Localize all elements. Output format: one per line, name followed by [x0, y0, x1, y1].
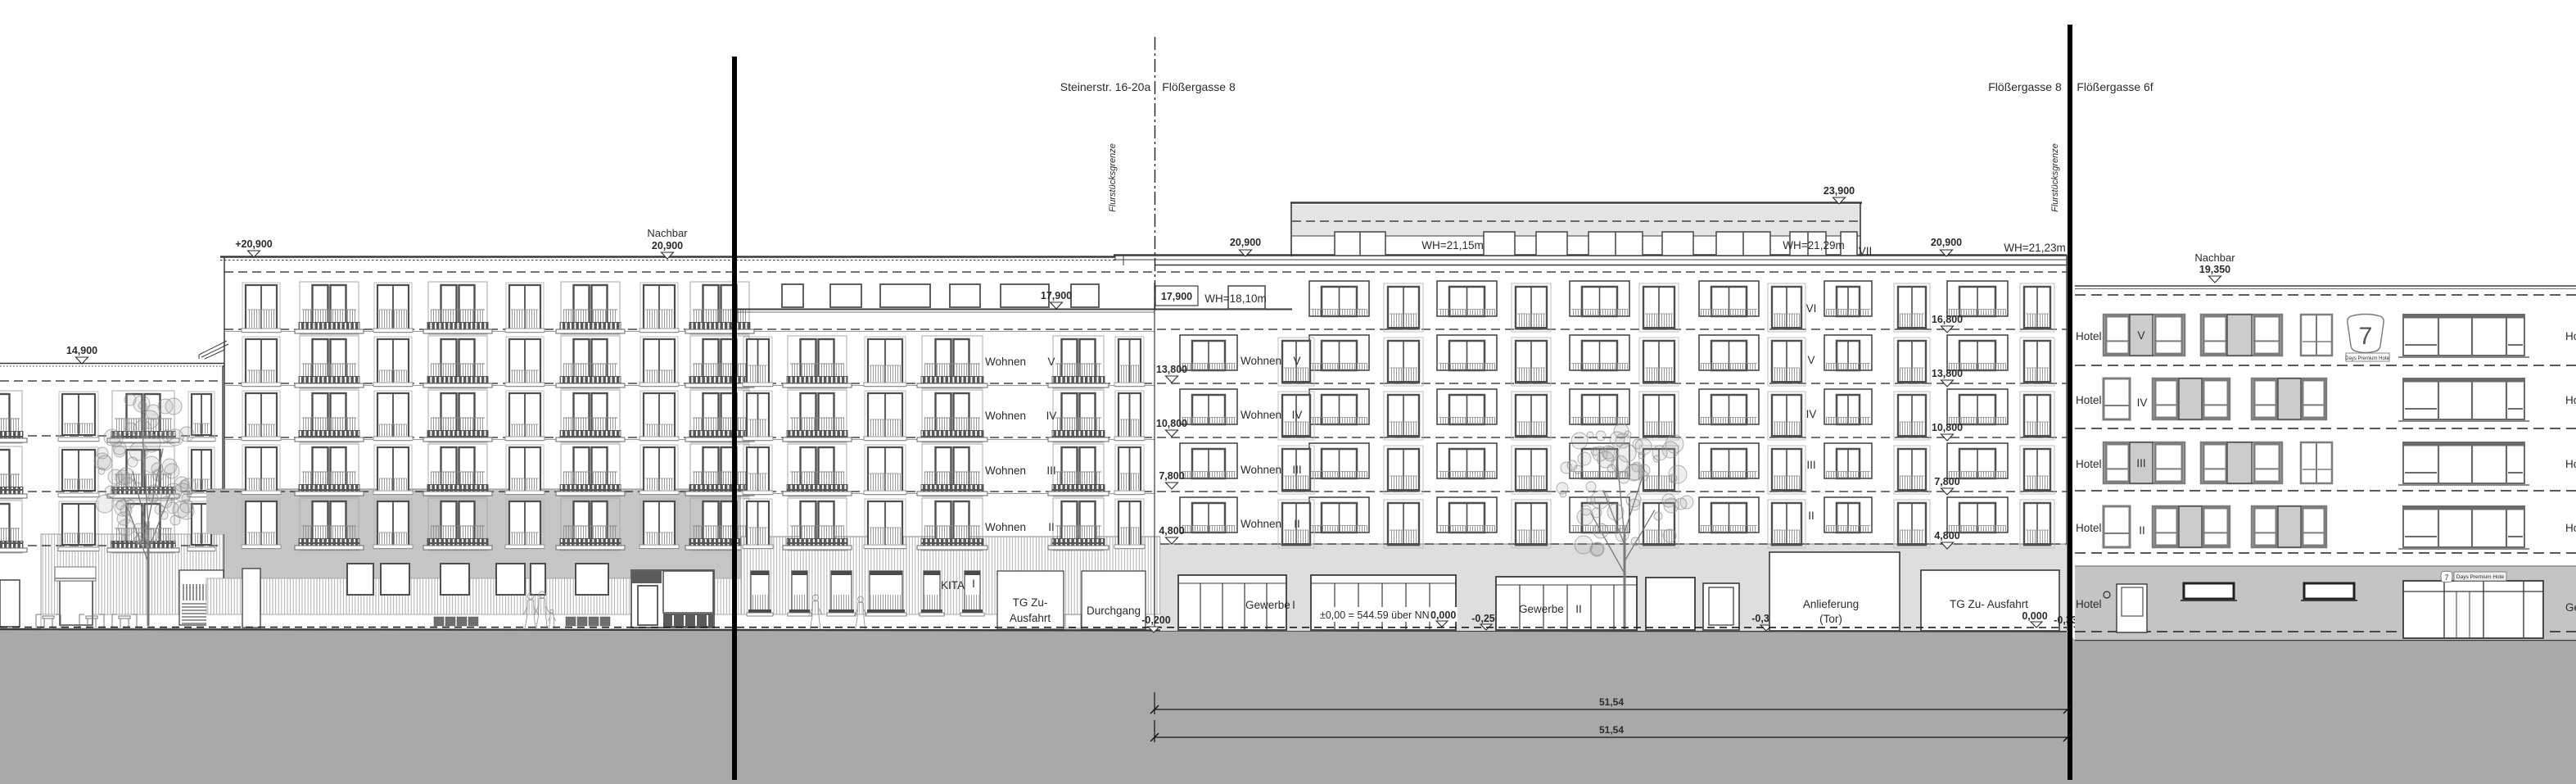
svg-text:14,900: 14,900 [66, 345, 97, 356]
svg-text:7,800: 7,800 [1159, 470, 1184, 482]
svg-text:Flößergasse 6f: Flößergasse 6f [2077, 80, 2153, 93]
svg-text:17,900: 17,900 [1161, 291, 1192, 302]
svg-text:V: V [2137, 329, 2144, 342]
svg-text:7,800: 7,800 [1934, 476, 1959, 487]
svg-text:Days Premium Hote: Days Premium Hote [2456, 574, 2505, 580]
svg-text:V: V [1807, 354, 1814, 366]
svg-text:TG Zu- Ausfahrt: TG Zu- Ausfahrt [1950, 598, 2028, 610]
svg-text:Wohnen: Wohnen [985, 521, 1026, 533]
svg-text:20,900: 20,900 [652, 240, 683, 252]
svg-text:Hotel: Hotel [2565, 522, 2576, 534]
svg-text:III: III [1046, 465, 1055, 477]
svg-text:-0,200: -0,200 [1141, 614, 1170, 626]
svg-text:Flurstücksgrenze: Flurstücksgrenze [1108, 143, 1118, 212]
svg-text:4,800: 4,800 [1159, 525, 1184, 537]
svg-text:Wohnen: Wohnen [985, 356, 1026, 368]
svg-text:(Tor): (Tor) [1819, 613, 1842, 625]
svg-text:Flößergasse 8: Flößergasse 8 [1162, 80, 1236, 93]
svg-text:II: II [1048, 521, 1055, 533]
svg-text:TG Zu-: TG Zu- [1013, 596, 1048, 609]
svg-text:Hotel: Hotel [2076, 458, 2102, 470]
svg-text:I: I [972, 578, 975, 590]
svg-text:III: III [1806, 459, 1815, 471]
svg-text:Flößergasse 8: Flößergasse 8 [1988, 80, 2062, 93]
svg-text:10,800: 10,800 [1932, 422, 1963, 433]
svg-text:WH=18,10m: WH=18,10m [1204, 292, 1266, 305]
svg-text:IV: IV [1292, 409, 1303, 421]
svg-text:IV: IV [1806, 408, 1817, 420]
svg-text:IV: IV [1046, 410, 1057, 422]
svg-text:III: III [2136, 457, 2145, 469]
svg-text:Wohnen: Wohnen [1241, 409, 1281, 421]
svg-text:Wohnen: Wohnen [1241, 464, 1281, 476]
svg-text:Wohnen: Wohnen [985, 410, 1026, 422]
svg-text:Wohnen: Wohnen [1241, 355, 1281, 367]
svg-text:II: II [2139, 524, 2145, 537]
svg-text:VI: VI [1806, 302, 1817, 315]
svg-text:II: II [1575, 603, 1582, 615]
svg-text:51,54: 51,54 [1599, 696, 1624, 708]
svg-text:20,900: 20,900 [1931, 237, 1962, 248]
svg-text:Flurstücksgrenze: Flurstücksgrenze [2050, 143, 2060, 212]
svg-text:19,350: 19,350 [2199, 264, 2230, 275]
svg-text:7: 7 [2444, 573, 2448, 582]
svg-text:Hotel: Hotel [2076, 522, 2102, 534]
svg-text:Wohnen: Wohnen [1241, 518, 1281, 530]
svg-text:10,800: 10,800 [1156, 418, 1187, 429]
svg-text:Hotel: Hotel [2565, 330, 2576, 342]
svg-text:Nachbar: Nachbar [647, 227, 688, 239]
svg-text:WH=21,15m: WH=21,15m [1421, 239, 1483, 252]
svg-text:Hotel: Hotel [2076, 394, 2102, 406]
svg-text:WH=21,29m: WH=21,29m [1783, 239, 1844, 252]
svg-text:Durchgang: Durchgang [1087, 605, 1141, 617]
svg-text:Nachbar: Nachbar [2194, 252, 2235, 264]
svg-text:WH=21,23m: WH=21,23m [2004, 242, 2065, 254]
svg-text:Hotel: Hotel [2565, 394, 2576, 406]
svg-text:I: I [1292, 599, 1295, 611]
svg-text:Hotel: Hotel [2076, 330, 2102, 342]
svg-text:Steinerstr. 16-20a: Steinerstr. 16-20a [1060, 80, 1151, 93]
svg-text:Gewerbe: Gewerbe [1519, 603, 1564, 615]
svg-text:VII: VII [1859, 245, 1873, 257]
svg-text:Wohnen: Wohnen [985, 465, 1026, 477]
svg-text:Gewerbe: Gewerbe [2565, 601, 2576, 614]
svg-text:0,000: 0,000 [1430, 610, 1456, 621]
svg-text:Anlieferung: Anlieferung [1803, 598, 1859, 610]
svg-text:7: 7 [2359, 323, 2373, 350]
svg-text:II: II [1294, 518, 1300, 530]
svg-text:V: V [1293, 355, 1300, 367]
svg-text:III: III [1292, 464, 1301, 476]
svg-text:20,900: 20,900 [1230, 237, 1261, 248]
svg-text:II: II [1808, 510, 1814, 522]
svg-text:KITA: KITA [941, 579, 965, 591]
svg-text:13,800: 13,800 [1932, 368, 1963, 379]
svg-text:Days Premium Hote: Days Premium Hote [2345, 356, 2389, 361]
svg-text:Ausfahrt: Ausfahrt [1010, 612, 1051, 624]
svg-text:Hotel: Hotel [2565, 458, 2576, 470]
svg-text:+20,900: +20,900 [235, 238, 273, 250]
svg-text:4,800: 4,800 [1934, 530, 1959, 542]
svg-text:Gewerbe: Gewerbe [1245, 599, 1290, 611]
svg-text:Hotel: Hotel [2076, 598, 2102, 610]
svg-text:IV: IV [2137, 397, 2148, 409]
svg-text:16,800: 16,800 [1932, 314, 1963, 325]
svg-text:13,800: 13,800 [1156, 364, 1187, 375]
svg-text:0,000: 0,000 [2022, 610, 2047, 622]
svg-text:±0,00 = 544.59 über NN: ±0,00 = 544.59 über NN [1320, 610, 1430, 621]
svg-text:V: V [1047, 356, 1055, 368]
svg-text:23,900: 23,900 [1824, 185, 1855, 197]
svg-text:17,900: 17,900 [1041, 290, 1072, 301]
svg-text:51,54: 51,54 [1599, 724, 1624, 736]
